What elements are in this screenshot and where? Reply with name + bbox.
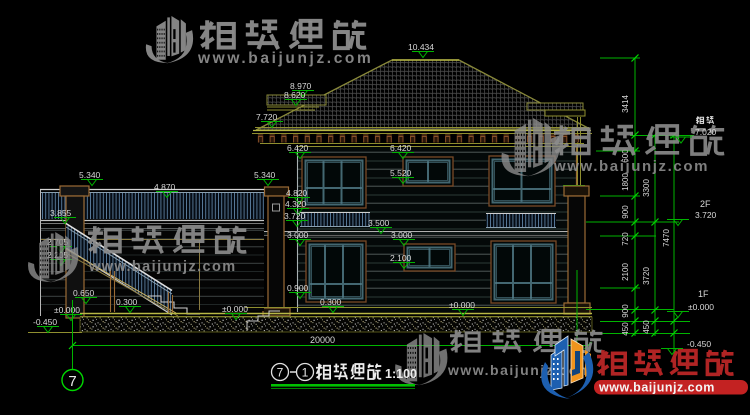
svg-text:1F: 1F bbox=[698, 289, 709, 299]
svg-text:5.340: 5.340 bbox=[254, 170, 276, 180]
svg-text:3.000: 3.000 bbox=[287, 230, 309, 240]
svg-text:2F: 2F bbox=[700, 199, 711, 209]
svg-text:8.620: 8.620 bbox=[284, 90, 306, 100]
svg-text:2100: 2100 bbox=[621, 263, 630, 281]
svg-text:3720: 3720 bbox=[642, 267, 651, 285]
svg-text:1800: 1800 bbox=[621, 173, 630, 191]
svg-text:10.434: 10.434 bbox=[408, 42, 434, 52]
svg-text:3.855: 3.855 bbox=[50, 208, 72, 218]
svg-text:www.baijunjz.com: www.baijunjz.com bbox=[598, 381, 715, 395]
svg-text:3.000: 3.000 bbox=[391, 230, 413, 240]
svg-text:5.340: 5.340 bbox=[79, 170, 101, 180]
svg-text:2.100: 2.100 bbox=[390, 253, 412, 263]
svg-text:±0.000: ±0.000 bbox=[54, 305, 80, 315]
svg-text:www.baijunjz.com: www.baijunjz.com bbox=[197, 50, 373, 67]
svg-text:450: 450 bbox=[621, 322, 630, 336]
svg-text:±0.000: ±0.000 bbox=[222, 304, 248, 314]
svg-text:5.520: 5.520 bbox=[390, 168, 412, 178]
svg-text:7: 7 bbox=[277, 366, 284, 380]
svg-text:6.420: 6.420 bbox=[390, 143, 412, 153]
svg-text:-0.450: -0.450 bbox=[687, 339, 711, 349]
svg-text:7.020: 7.020 bbox=[695, 127, 717, 137]
svg-text:720: 720 bbox=[621, 232, 630, 246]
svg-text:450: 450 bbox=[642, 320, 651, 334]
svg-text:1: 1 bbox=[302, 366, 309, 380]
svg-text:-0.450: -0.450 bbox=[33, 317, 57, 327]
svg-text:20000: 20000 bbox=[310, 335, 335, 345]
svg-text:0.900: 0.900 bbox=[287, 283, 309, 293]
svg-text:3300: 3300 bbox=[642, 179, 651, 197]
svg-text:3.720: 3.720 bbox=[284, 211, 306, 221]
svg-text:7.720: 7.720 bbox=[256, 112, 278, 122]
svg-text:3.720: 3.720 bbox=[695, 210, 717, 220]
svg-text:1:100: 1:100 bbox=[385, 367, 417, 381]
svg-text:900: 900 bbox=[621, 304, 630, 318]
svg-text:0.300: 0.300 bbox=[116, 297, 138, 307]
svg-text:3414: 3414 bbox=[621, 95, 630, 113]
svg-text:0.300: 0.300 bbox=[320, 297, 342, 307]
svg-text:www.baijunjz.com: www.baijunjz.com bbox=[88, 259, 237, 275]
svg-text:±0.000: ±0.000 bbox=[688, 302, 714, 312]
svg-text:6.420: 6.420 bbox=[287, 143, 309, 153]
svg-text:7470: 7470 bbox=[662, 229, 671, 247]
svg-text:0.650: 0.650 bbox=[73, 288, 95, 298]
svg-text:7: 7 bbox=[68, 373, 76, 390]
svg-text:4.870: 4.870 bbox=[154, 182, 176, 192]
svg-text:±0.000: ±0.000 bbox=[449, 300, 475, 310]
svg-text:www.baijunjz.com: www.baijunjz.com bbox=[553, 158, 709, 175]
svg-text:900: 900 bbox=[621, 205, 630, 219]
svg-text:4.820: 4.820 bbox=[286, 188, 308, 198]
svg-text:4.320: 4.320 bbox=[285, 199, 307, 209]
svg-text:3.500: 3.500 bbox=[368, 218, 390, 228]
